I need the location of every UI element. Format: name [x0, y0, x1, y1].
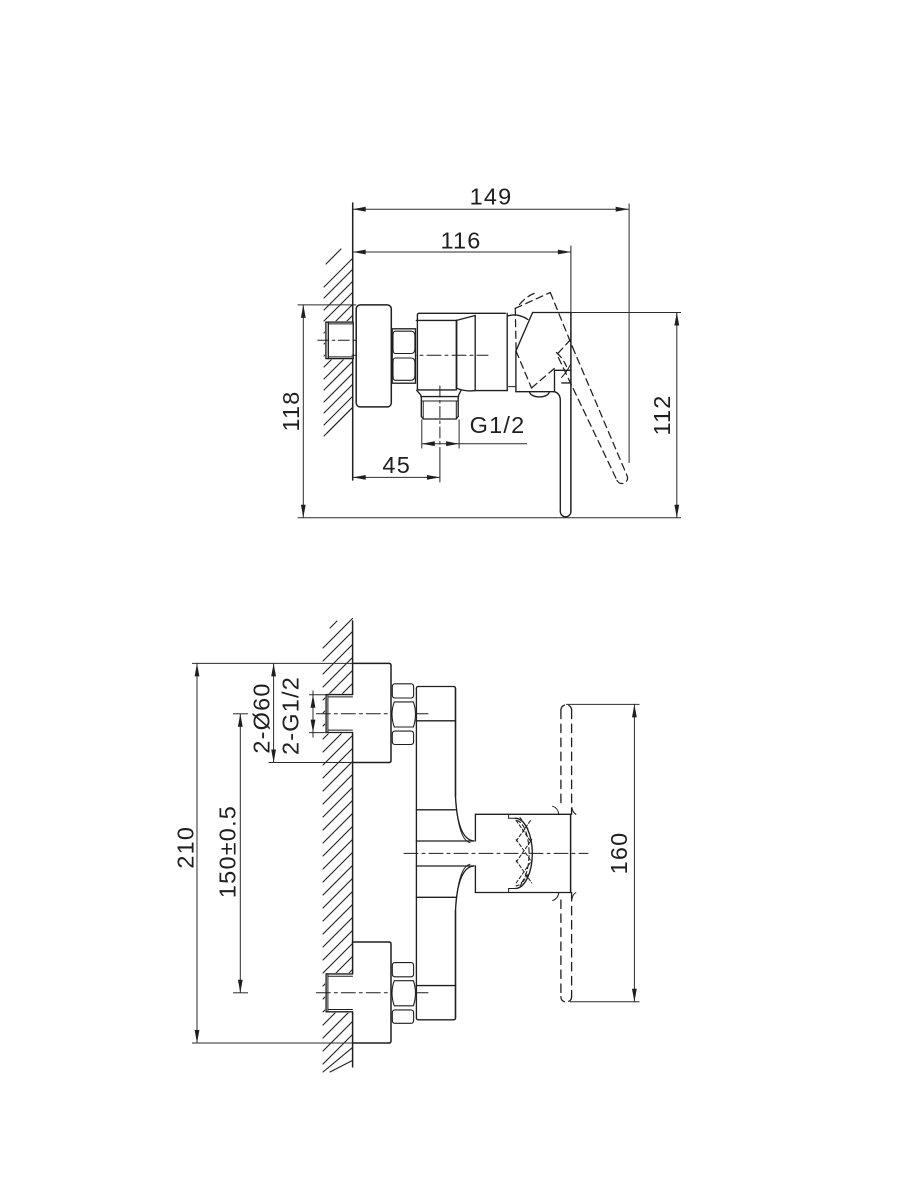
svg-text:2-G1/2: 2-G1/2 [278, 676, 304, 755]
svg-text:116: 116 [440, 228, 481, 254]
svg-text:45: 45 [382, 452, 411, 478]
svg-text:2-Ø60: 2-Ø60 [249, 682, 275, 753]
svg-text:112: 112 [649, 394, 675, 435]
svg-text:G1/2: G1/2 [470, 412, 526, 438]
svg-text:160: 160 [606, 832, 632, 875]
svg-text:118: 118 [278, 390, 304, 431]
svg-text:150±0.5: 150±0.5 [215, 805, 241, 898]
svg-text:149: 149 [470, 184, 513, 210]
svg-text:210: 210 [173, 826, 199, 869]
